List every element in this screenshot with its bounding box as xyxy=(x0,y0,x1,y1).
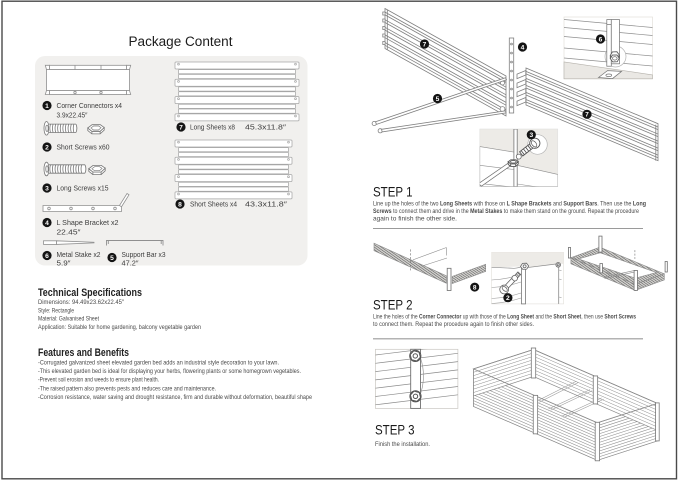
svg-text:4: 4 xyxy=(45,220,49,227)
svg-text:7: 7 xyxy=(179,124,183,131)
svg-text:5: 5 xyxy=(110,255,114,262)
svg-text:Material: Galvanised Sheet: Material: Galvanised Sheet xyxy=(38,316,99,323)
svg-text:Style: Rectangle: Style: Rectangle xyxy=(38,307,74,314)
svg-text:Application: Suitable for home: Application: Suitable for home gardening… xyxy=(38,324,201,331)
svg-text:to connect them. Repeat the pr: to connect them. Repeat the procedure ag… xyxy=(373,321,534,328)
svg-text:-Prevent soil erosion and weed: -Prevent soil erosion and weeds to ensur… xyxy=(38,377,159,384)
svg-text:Short Screws x60: Short Screws x60 xyxy=(57,143,110,152)
svg-text:Corner Connectors x4: Corner Connectors x4 xyxy=(57,101,123,110)
svg-text:8: 8 xyxy=(473,284,477,291)
svg-text:-This elevated garden bed is i: -This elevated garden bed is ideal for d… xyxy=(38,368,301,375)
svg-text:-The raised pattern also preve: -The raised pattern also prevents pests … xyxy=(38,385,216,392)
svg-text:STEP 3: STEP 3 xyxy=(375,423,415,439)
svg-text:8: 8 xyxy=(178,201,182,208)
svg-text:6: 6 xyxy=(599,36,603,43)
svg-text:-Corrugated galvanized sheet e: -Corrugated galvanized sheet elevated ga… xyxy=(38,360,279,367)
svg-text:L Shape Bracket x2: L Shape Bracket x2 xyxy=(57,218,119,227)
svg-text:2: 2 xyxy=(45,144,49,151)
svg-text:7: 7 xyxy=(585,112,589,119)
svg-text:Short Sheets x4: Short Sheets x4 xyxy=(190,200,237,209)
svg-text:Line the holes of the Corner C: Line the holes of the Corner Connector u… xyxy=(373,314,636,321)
svg-text:STEP 1: STEP 1 xyxy=(373,185,413,201)
svg-text:-Corrosion resistance, water s: -Corrosion resistance, water saving and … xyxy=(38,394,312,401)
svg-text:7: 7 xyxy=(423,41,427,48)
svg-text:Package Content: Package Content xyxy=(129,34,233,50)
svg-text:22.45″: 22.45″ xyxy=(57,228,82,237)
svg-text:Long Sheets x8: Long Sheets x8 xyxy=(190,123,235,132)
svg-text:Screws to connect them and dri: Screws to connect them and drive in the … xyxy=(373,208,639,215)
svg-text:43.3x11.8″: 43.3x11.8″ xyxy=(245,200,288,209)
svg-text:STEP 2: STEP 2 xyxy=(373,298,413,314)
svg-text:Long Screws x15: Long Screws x15 xyxy=(57,184,109,193)
svg-text:45.3x11.8″: 45.3x11.8″ xyxy=(245,123,287,132)
svg-text:3: 3 xyxy=(529,132,533,139)
svg-text:3.9x22.45″: 3.9x22.45″ xyxy=(57,111,88,120)
svg-text:47.2″: 47.2″ xyxy=(122,259,139,268)
svg-text:3: 3 xyxy=(45,185,49,192)
svg-text:5.9″: 5.9″ xyxy=(57,259,71,268)
svg-text:Features and Benefits: Features and Benefits xyxy=(38,347,129,359)
svg-text:Line up the holes of the two L: Line up the holes of the two Long Sheets… xyxy=(373,201,646,208)
svg-text:Finish the installation.: Finish the installation. xyxy=(375,441,430,448)
svg-text:4: 4 xyxy=(521,44,525,51)
svg-text:Dimensions: 94.49x23.62x22.45″: Dimensions: 94.49x23.62x22.45″ xyxy=(38,299,125,306)
svg-text:5: 5 xyxy=(436,96,440,103)
svg-text:Technical Specifications: Technical Specifications xyxy=(38,287,142,299)
svg-text:1: 1 xyxy=(45,103,49,110)
svg-text:2: 2 xyxy=(506,295,510,302)
svg-text:6: 6 xyxy=(45,253,49,260)
svg-text:again to finish the other side: again to finish the other side. xyxy=(373,216,457,223)
